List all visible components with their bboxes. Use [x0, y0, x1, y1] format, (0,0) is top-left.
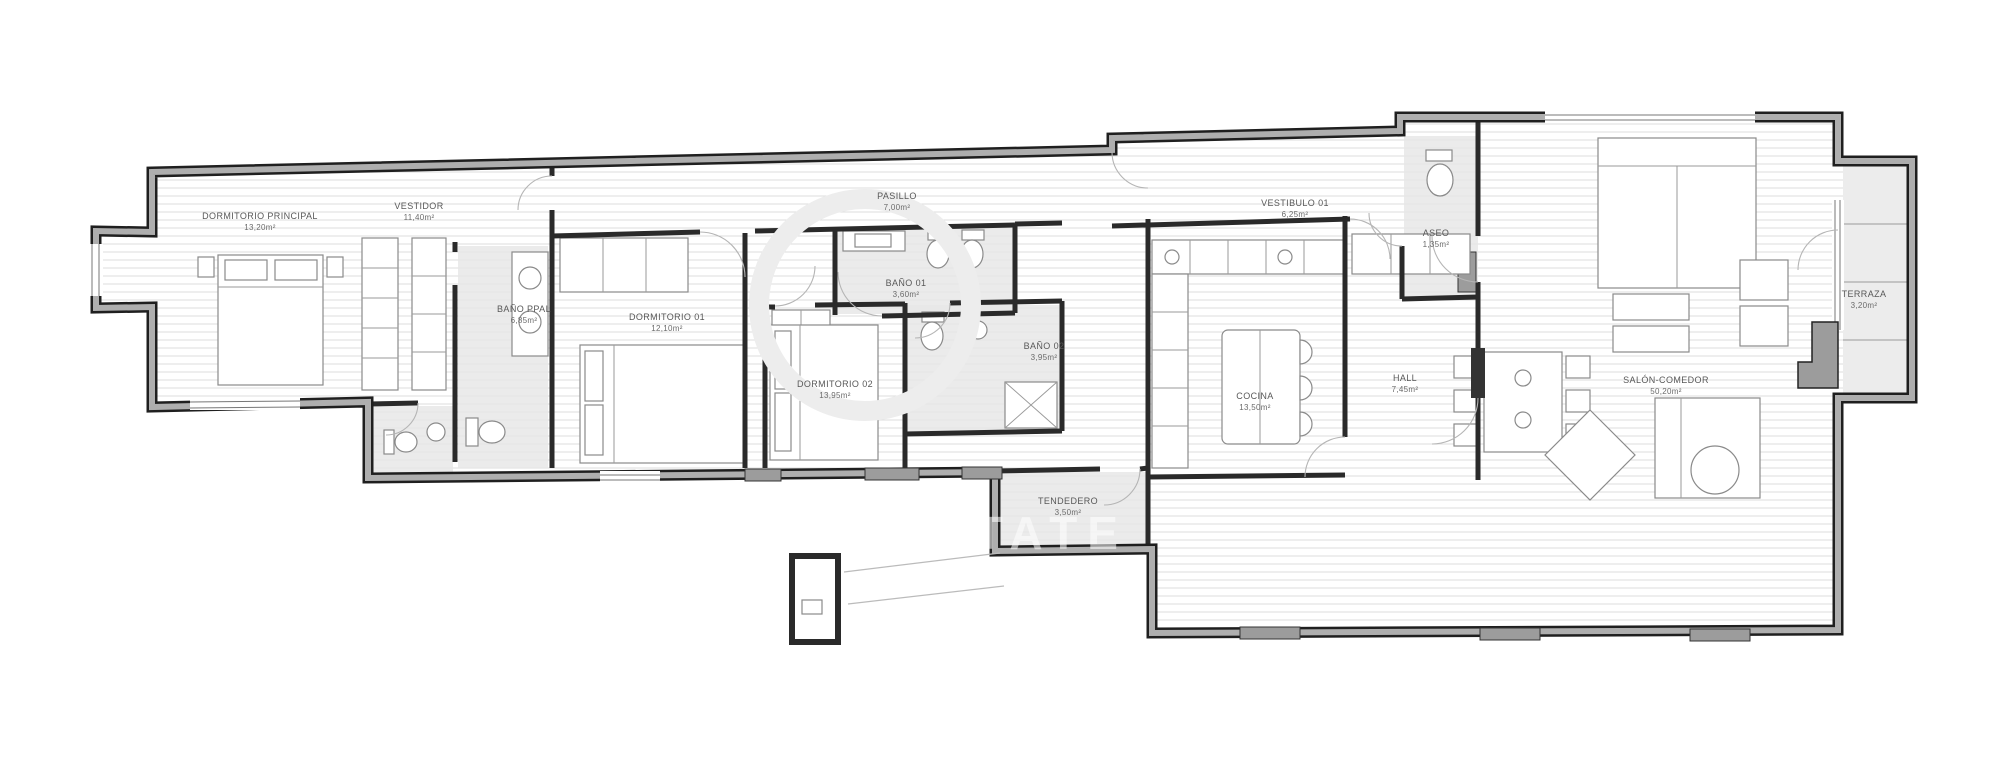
- window-sill: [1690, 629, 1750, 641]
- room-area: 13,95m²: [819, 391, 850, 400]
- room-name: ASEO: [1423, 228, 1450, 238]
- room-area: 3,95m²: [1031, 353, 1058, 362]
- room-area: 3,60m²: [893, 290, 920, 299]
- window-sill: [745, 469, 781, 481]
- watermark-text: ESTATE: [893, 507, 1128, 559]
- window-sill: [865, 468, 919, 480]
- window-sill: [1240, 627, 1300, 639]
- dining-table: [1484, 352, 1562, 452]
- room-area: 13,50m²: [1239, 403, 1270, 412]
- service-shaft: [792, 553, 1004, 642]
- room-area: 6,85m²: [511, 316, 538, 325]
- room-area: 7,00m²: [884, 203, 911, 212]
- room-name: PASILLO: [877, 191, 917, 201]
- room-name: COCINA: [1236, 391, 1273, 401]
- room-name: TENDEDERO: [1038, 496, 1098, 506]
- hall-cabinet: [1352, 234, 1470, 274]
- room-name: DORMITORIO PRINCIPAL: [202, 211, 318, 221]
- window-sill: [1480, 628, 1540, 640]
- room-name: DORMITORIO 01: [629, 312, 705, 322]
- room-name: BAÑO 02: [1024, 341, 1065, 351]
- room-name: VESTIDOR: [394, 201, 443, 211]
- floor-plan-page: ESTATE DORMITORIO PRINCIPAL 13,20m² VEST…: [0, 0, 1999, 763]
- room-area: 3,50m²: [1055, 508, 1082, 517]
- room-area: 6,25m²: [1282, 210, 1309, 219]
- room-area: 12,10m²: [651, 324, 682, 333]
- entry-door-block: [1471, 348, 1485, 398]
- room-name: SALÓN-COMEDOR: [1623, 375, 1709, 385]
- room-area: 3,20m²: [1851, 301, 1878, 310]
- room-area: 1,35m²: [1423, 240, 1450, 249]
- room-name: BAÑO PPAL: [497, 304, 551, 314]
- master-bed: [198, 255, 343, 385]
- window-sill: [962, 467, 1002, 479]
- pouf: [1691, 446, 1739, 494]
- terraza-floor: [1843, 166, 1909, 395]
- room-name: BAÑO 01: [886, 278, 927, 288]
- room-area: 13,20m²: [244, 223, 275, 232]
- room-area: 11,40m²: [404, 213, 435, 222]
- room-name: HALL: [1393, 373, 1417, 383]
- room-name: DORMITORIO 02: [797, 379, 873, 389]
- room-area: 50,20m²: [1650, 387, 1681, 396]
- room-name: VESTIBULO 01: [1261, 198, 1329, 208]
- room-name: TERRAZA: [1842, 289, 1887, 299]
- room-area: 7,45m²: [1392, 385, 1419, 394]
- floor-plan-drawing: ESTATE DORMITORIO PRINCIPAL 13,20m² VEST…: [0, 0, 1999, 763]
